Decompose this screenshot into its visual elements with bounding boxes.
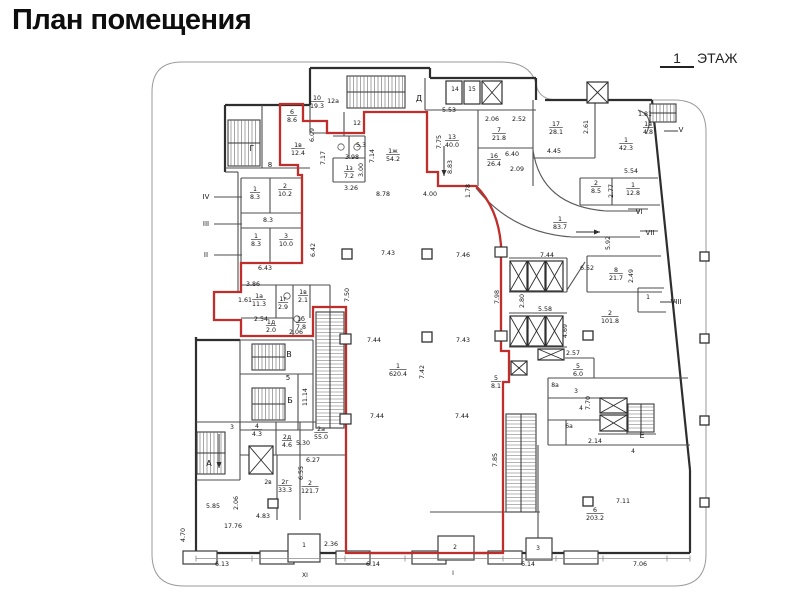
plan-label-text: 12.4 (291, 150, 305, 157)
plan-label-text: 2.61 (583, 120, 590, 134)
plan-label-text: IV (203, 193, 210, 201)
plan-label-text: 5.53 (442, 107, 456, 114)
plan-label-text: 1.81 (638, 111, 652, 118)
plan-label: 18.3 (251, 233, 261, 248)
plan-label-text: 2.9 (278, 304, 288, 311)
plan-label-text: 2.57 (566, 350, 580, 357)
plan-label: III (203, 220, 209, 228)
plan-label: 6.52 (580, 265, 594, 272)
plan-label-text: 6.27 (306, 457, 320, 464)
plan-label-text: 5.30 (296, 440, 310, 447)
column (700, 334, 709, 343)
plan-label-text: 6.0 (573, 371, 583, 378)
plan-label: 2г33.3 (278, 479, 292, 494)
plan-label-text: 101.8 (601, 318, 619, 325)
plan-label: 6a (565, 423, 573, 430)
plan-label-text: 3 (536, 545, 540, 552)
plan-label: 1ж54.2 (386, 148, 400, 163)
plan-label-text: 7.70 (585, 396, 592, 410)
plan-label: 2.80 (519, 294, 526, 308)
staircase (252, 388, 285, 420)
plan-label-text: 10.0 (279, 241, 293, 248)
plan-label: 1019.3 (310, 95, 324, 110)
column (700, 252, 709, 261)
plan-label: 1 (646, 294, 650, 301)
plan-label-text: 1 (302, 542, 306, 549)
plan-label-text: VIII (671, 298, 682, 306)
plan-label: 5.85 (206, 503, 220, 510)
plan-label: 7.44 (540, 252, 554, 259)
plan-label: 5.30 (296, 440, 310, 447)
plan-label-text: 1a (255, 293, 263, 300)
plan-label-text: 7 (497, 127, 501, 134)
plan-label-text: III (203, 220, 209, 228)
elevator-shaft (511, 361, 527, 375)
staircase (316, 312, 344, 428)
plan-label: 7.43 (381, 250, 395, 257)
plan-label-text: 21.7 (609, 275, 623, 282)
plan-label-text: 5 (576, 363, 580, 370)
plan-label-text: 3 (284, 233, 288, 240)
plan-label-text: ХI (302, 572, 308, 579)
plan-label: А (206, 459, 212, 468)
plan-label-text: 8.83 (447, 160, 454, 174)
plan-label-text: 4.6 (282, 442, 292, 449)
plan-label-text: 6a (565, 423, 573, 430)
plan-label: 2.06 (233, 496, 240, 510)
direction-arrowhead (594, 230, 600, 235)
plan-label: 6.09 (309, 128, 316, 142)
plan-label-text: 1 (624, 137, 628, 144)
plan-label-text: 6.52 (580, 265, 594, 272)
plan-label-text: 7.44 (370, 413, 384, 420)
plan-label: 5.3 (356, 142, 366, 149)
plan-label-text: 2 (283, 183, 287, 190)
elevator-shaft (482, 81, 502, 104)
plan-label-text: 40.0 (445, 142, 459, 149)
plan-label: 1a11.3 (252, 293, 266, 308)
plan-label-text: 12a (327, 98, 339, 105)
plan-label-text: 1ж (388, 148, 398, 155)
plan-label-text: 6.14 (366, 561, 380, 568)
plan-label: 4.69 (562, 324, 569, 338)
column (700, 416, 709, 425)
plan-label-text: 7.11 (616, 498, 630, 505)
plan-label-text: 6.14 (521, 561, 535, 568)
plan-label-text: 6.55 (298, 466, 305, 480)
plan-label: 2.06 (289, 329, 303, 336)
plan-label-text: 2.36 (324, 541, 338, 548)
plan-label-text: 4.8 (643, 129, 653, 136)
plan-label: VII (646, 229, 655, 237)
plan-label: 1в12.4 (291, 142, 305, 157)
plan-label: 142.3 (619, 137, 633, 152)
plan-label: 2.57 (566, 350, 580, 357)
plan-label: 1620.4 (389, 363, 407, 378)
plan-label: 17.76 (224, 523, 242, 530)
plan-label: 2.52 (512, 116, 526, 123)
plan-label-text: 1в (294, 142, 302, 149)
plan-label-text: 7.43 (381, 250, 395, 257)
plan-label: 8.3 (263, 217, 273, 224)
plan-label-text: 2a (317, 426, 325, 433)
plan-label-text: 1г (279, 296, 286, 303)
column (583, 331, 593, 340)
column (422, 249, 432, 259)
outline-pilaster (495, 247, 507, 257)
plan-label-text: 12 (353, 120, 361, 127)
plan-label: IV (203, 193, 210, 201)
plan-label: 3.86 (246, 281, 260, 288)
plan-label-text: 4 (631, 448, 635, 455)
plan-label: 8.83 (447, 160, 454, 174)
plan-label-text: 5.85 (206, 503, 220, 510)
plan-label: 6.13 (215, 561, 229, 568)
plan-label: 1.78 (465, 184, 472, 198)
plan-label-text: 1 (631, 182, 635, 189)
plan-label: 3 (574, 388, 578, 395)
plan-label-text: 2в (264, 479, 272, 486)
plan-label-text: 33.3 (278, 487, 292, 494)
plan-label-text: 1.61 (238, 297, 252, 304)
staircase (650, 104, 676, 122)
plan-label: 7.42 (419, 365, 426, 379)
plan-label: 28.5 (591, 180, 601, 195)
plan-label-text: 3 (230, 424, 234, 431)
plan-label-text: 28.1 (549, 129, 563, 136)
plan-label-text: 1 (254, 233, 258, 240)
plan-label-text: 13 (448, 134, 456, 141)
plan-label-text: 5.54 (624, 168, 638, 175)
plan-label: 2д4.6 (282, 434, 292, 449)
plan-label-text: 21.8 (492, 135, 506, 142)
plan-label-text: 2г (281, 479, 288, 486)
plan-label: 1.61 (238, 297, 252, 304)
plan-label-text: 2.06 (289, 329, 303, 336)
plan-label-text: 8 (268, 161, 272, 169)
plan-label-text: 15 (468, 86, 476, 93)
plan-label-text: 8 (614, 267, 618, 274)
plan-label-text: VII (646, 229, 655, 237)
plan-label: 7.46 (456, 252, 470, 259)
plan-label-text: 7.2 (344, 173, 354, 180)
plan-label-text: 10 (313, 95, 321, 102)
plan-label: VI (636, 208, 643, 216)
plan-label-text: 10.2 (278, 191, 292, 198)
plan-label: 6.43 (258, 265, 272, 272)
plan-label: 6.42 (310, 243, 317, 257)
plan-label: 7.50 (344, 288, 351, 302)
plan-label: 8.78 (376, 191, 390, 198)
column (342, 249, 352, 259)
plan-label: II (204, 251, 208, 259)
plan-label: 2.61 (583, 120, 590, 134)
plan-label-text: 2 (594, 180, 598, 187)
plan-label-text: 2 (453, 544, 457, 551)
plan-label-text: 2.06 (233, 496, 240, 510)
plan-label: 6.55 (298, 466, 305, 480)
outline-pilaster (495, 331, 507, 341)
plan-label-text: 11.14 (302, 388, 309, 406)
plan-label-text: 4.70 (180, 528, 187, 542)
plan-label: 4.45 (547, 148, 561, 155)
plan-label-text: 1в (299, 289, 307, 296)
plan-label: 2.77 (608, 184, 615, 198)
plan-label: 4.00 (423, 191, 437, 198)
elevator-shaft (538, 349, 564, 360)
plumbing-fixture (338, 144, 344, 150)
plan-label-text: 2.1 (298, 297, 308, 304)
staircase (506, 414, 536, 512)
plan-label: 18.3 (250, 186, 260, 201)
elevator-shaft (249, 446, 273, 474)
plan-label: 8a (551, 382, 559, 389)
plan-label: 11.14 (302, 388, 309, 406)
plan-label-text: 7.44 (455, 413, 469, 420)
plan-label: 8 (268, 161, 272, 169)
plan-label-text: 7.46 (456, 252, 470, 259)
plan-label-text: 2.80 (519, 294, 526, 308)
direction-arrowhead (442, 170, 447, 176)
plan-label-text: 203.2 (586, 515, 604, 522)
plan-label: ХI (302, 572, 308, 579)
plan-label: 7.11 (616, 498, 630, 505)
elevator-shaft (528, 261, 545, 291)
plan-label: 4 (631, 448, 635, 455)
plan-label-text: 8.3 (263, 217, 273, 224)
plan-label-text: I (452, 570, 454, 577)
staircase (228, 120, 260, 166)
plan-label-text: 8.78 (376, 191, 390, 198)
plan-label: 1г2.9 (278, 296, 288, 311)
plan-label-text: 7.42 (419, 365, 426, 379)
plan-label-text: 4 (255, 423, 259, 430)
plan-label-text: 19.3 (310, 103, 324, 110)
staircase (628, 404, 654, 432)
plan-label: 6.27 (306, 457, 320, 464)
plan-label: 3 (230, 424, 234, 431)
plan-label-text: V (679, 126, 684, 134)
plan-label-text: 7.17 (320, 151, 327, 165)
column (700, 498, 709, 507)
plan-label-text: 2 (608, 310, 612, 317)
plan-label: 6203.2 (586, 507, 604, 522)
elevator-shaft (510, 261, 527, 291)
plan-label: 5.92 (605, 236, 612, 250)
plan-label: 7.75 (436, 135, 443, 149)
elevator-shaft (546, 316, 563, 346)
entry-vestibule (183, 551, 217, 564)
plan-label-text: 1 (396, 363, 400, 370)
plan-label: 7.70 (585, 396, 592, 410)
plan-label: 1з7.2 (344, 165, 354, 180)
plan-label: 112.8 (626, 182, 640, 197)
plan-label-text: 1з (345, 165, 352, 172)
plan-label-text: VI (636, 208, 643, 216)
plan-label-text: 4.69 (562, 324, 569, 338)
staircase (252, 344, 285, 370)
staircase (347, 76, 405, 108)
plan-label-text: 4 (579, 405, 583, 412)
plan-label-text: 4.45 (547, 148, 561, 155)
plan-label: 1626.4 (487, 153, 501, 168)
plan-label: 4 (579, 405, 583, 412)
plan-label-text: 3 (574, 388, 578, 395)
plan-label-text: 5.3 (356, 142, 366, 149)
plan-label: 4.70 (180, 528, 187, 542)
plan-label: Д (416, 94, 422, 103)
plan-label-text: 7.98 (494, 290, 501, 304)
plan-label: 2 (453, 544, 457, 551)
plan-label: 6.14 (366, 561, 380, 568)
outline-pilaster (340, 334, 351, 344)
plan-label-text: 2.06 (485, 116, 499, 123)
plan-label-text: 1a (644, 121, 652, 128)
plan-label-text: 6 (290, 109, 294, 116)
plan-label-text: Б (287, 396, 293, 405)
plan-label-text: 8.5 (591, 188, 601, 195)
plan-label-text: 2.49 (628, 269, 635, 283)
plan-label: 2.14 (588, 438, 602, 445)
plan-label: 56.0 (573, 363, 583, 378)
plan-label: 4.83 (256, 513, 270, 520)
plan-label-text: 2д (283, 434, 292, 441)
plan-label-text: 7.50 (344, 288, 351, 302)
plan-label-text: 4.00 (423, 191, 437, 198)
plan-label: Б (287, 396, 293, 405)
plan-label-text: Д (416, 94, 422, 103)
plan-label: 5.53 (442, 107, 456, 114)
plan-label-text: 3.86 (246, 281, 260, 288)
plan-label: 721.8 (492, 127, 506, 142)
plan-label: 2101.8 (601, 310, 619, 325)
plan-label-text: 5.58 (538, 306, 552, 313)
plan-label: 7.43 (456, 337, 470, 344)
plan-label-text: II (204, 251, 208, 259)
plan-label-text: 5 (286, 374, 290, 382)
plan-label: V (679, 126, 684, 134)
plan-label: В (286, 350, 292, 359)
plan-label: 210.2 (278, 183, 292, 198)
entry-vestibule (564, 551, 598, 564)
plan-label: 2.09 (510, 166, 524, 173)
plan-label: 15 (468, 86, 476, 93)
plan-label-text: 42.3 (619, 145, 633, 152)
plan-label-text: 8.3 (251, 241, 261, 248)
plan-label-text: 8.6 (287, 117, 297, 124)
plan-label: 1.81 (638, 111, 652, 118)
plan-label-text: 7.85 (492, 453, 499, 467)
plan-label: I (452, 570, 454, 577)
plan-label: 2.36 (324, 541, 338, 548)
exterior-wall (652, 100, 690, 470)
plan-label: 5.58 (538, 306, 552, 313)
plan-label-text: 6.42 (310, 243, 317, 257)
column (268, 499, 278, 508)
outline-pilaster (340, 414, 351, 424)
plan-label-text: E (639, 431, 644, 440)
plan-label-text: 5 (494, 375, 498, 382)
plan-label-text: 3.98 (345, 154, 359, 161)
plan-label: 44.3 (252, 423, 262, 438)
plan-label: 3 (536, 545, 540, 552)
plan-label: 5 (286, 374, 290, 382)
plan-label: 2.06 (485, 116, 499, 123)
plan-label: 821.7 (609, 267, 623, 282)
plan-label: 1a4.8 (643, 121, 653, 136)
plan-label: 7.44 (367, 337, 381, 344)
plan-label-text: 7.75 (436, 135, 443, 149)
plan-label-text: 7.44 (367, 337, 381, 344)
plan-label-text: 4.3 (252, 431, 262, 438)
plan-label-text: 2.14 (588, 438, 602, 445)
plan-label: 7.14 (369, 149, 376, 163)
plan-label: VIII (671, 298, 682, 306)
plan-label-text: 7.14 (369, 149, 376, 163)
plan-label: 1 (302, 542, 306, 549)
plan-label: 3.00 (358, 163, 365, 177)
plan-label: 2.49 (628, 269, 635, 283)
plan-label-text: 8a (551, 382, 559, 389)
plan-label-text: А (206, 459, 212, 468)
plan-label-text: 2.0 (266, 327, 276, 334)
plan-label: 1340.0 (445, 134, 459, 149)
column (583, 497, 593, 506)
plan-label-text: 1 (646, 294, 650, 301)
plan-label-text: 1б (297, 315, 305, 323)
plan-label-text: 1 (558, 216, 562, 223)
plan-label: 7.44 (455, 413, 469, 420)
plan-label: 7.85 (492, 453, 499, 467)
plan-label-text: 7.44 (540, 252, 554, 259)
plan-label: 12 (353, 120, 361, 127)
plan-label: 7.98 (494, 290, 501, 304)
plan-label-text: 3.00 (358, 163, 365, 177)
plan-label: 7.44 (370, 413, 384, 420)
plan-label-text: 1 (253, 186, 257, 193)
plan-label-text: 8.1 (491, 383, 501, 390)
plan-label-text: 83.7 (553, 224, 567, 231)
plan-label-text: 3.26 (344, 185, 358, 192)
elevator-shaft (587, 82, 608, 103)
plan-label-text: 17 (552, 121, 560, 128)
plan-label-text: 54.2 (386, 156, 400, 163)
plan-label-text: 4.83 (256, 513, 270, 520)
plan-label-text: 5.92 (605, 236, 612, 250)
plan-label: 5.54 (624, 168, 638, 175)
plan-label-text: 7.06 (633, 561, 647, 568)
plan-label: 3.26 (344, 185, 358, 192)
elevator-shaft (546, 261, 563, 291)
plan-label: 7.17 (320, 151, 327, 165)
plan-label-text: 6.43 (258, 265, 272, 272)
plan-label: 1в2.1 (298, 289, 308, 304)
plan-label-text: 620.4 (389, 371, 407, 378)
plan-label-text: 2 (308, 480, 312, 487)
plan-label-text: В (286, 350, 292, 359)
plan-label: 12a (327, 98, 339, 105)
plan-label-text: 6 (593, 507, 597, 514)
plan-label: 3.98 (345, 154, 359, 161)
plan-label-text: 55.0 (314, 434, 328, 441)
plan-label: 1728.1 (549, 121, 563, 136)
plan-label: 1д2.0 (266, 319, 276, 334)
plan-label-text: 6.40 (505, 151, 519, 158)
floor-plan-drawing: 1019.312a1268.61в12.4Г8Д14155.532.062.52… (0, 0, 811, 600)
column (422, 332, 432, 342)
plan-label-text: 121.7 (301, 488, 319, 495)
plan-label-text: 11.3 (252, 301, 266, 308)
